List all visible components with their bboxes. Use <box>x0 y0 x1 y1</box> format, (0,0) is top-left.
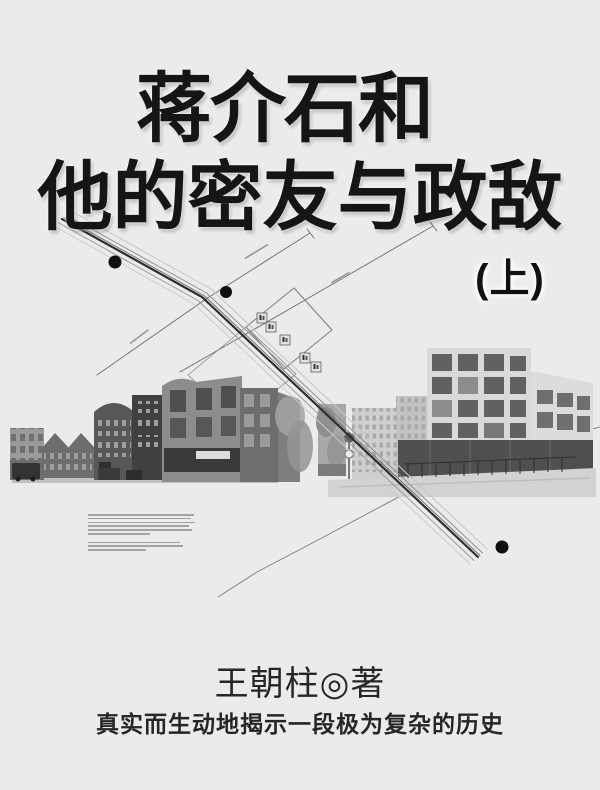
modern-street-photo-collage <box>316 348 596 497</box>
author-line: 王朝柱◎著 <box>0 656 600 705</box>
title-line-2: 他的密友与政敌 <box>0 156 600 242</box>
artwork-caption-microtext <box>88 514 200 553</box>
tagline: 真实而生动地揭示一段极为复杂的历史 <box>0 705 600 739</box>
book-cover: { "cover": { "title_line1": "蒋介石和", "tit… <box>0 0 600 790</box>
volume-label: (上) <box>440 246 580 304</box>
book-title: 蒋介石和 他的密友与政敌 <box>0 64 600 242</box>
title-line-1: 蒋介石和 <box>0 64 584 156</box>
old-street-photo-collage <box>10 376 313 483</box>
